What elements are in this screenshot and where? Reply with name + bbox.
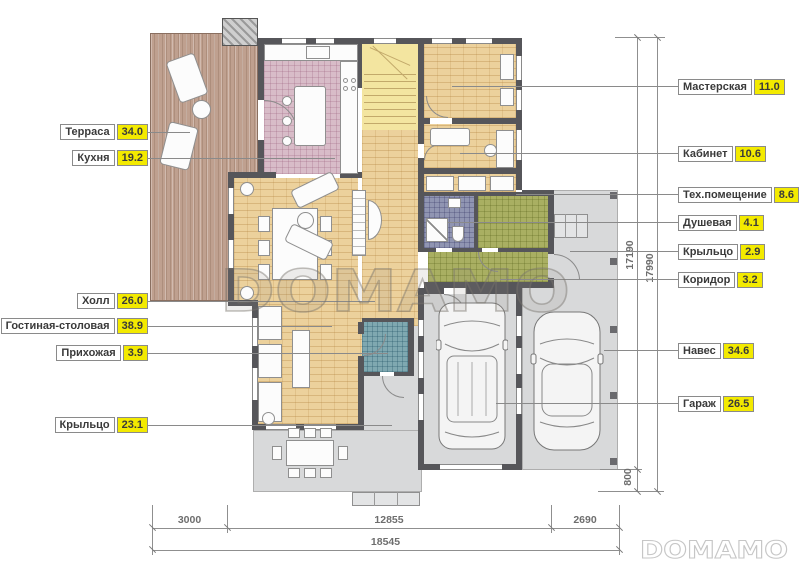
terrace-table [192,100,211,119]
dim-value-3000: 3000 [152,514,227,526]
leader-terrace [148,132,190,133]
room-label-office: Кабинет 10.6 [678,146,766,162]
coffee-table [297,212,314,229]
watermark-corner: DOMAMO [638,534,794,566]
leader-entry [148,353,388,354]
plant-pot [262,412,275,425]
hall-closet [292,330,310,388]
plant-pot [240,182,254,196]
window [228,240,234,268]
room-name: Коридор [678,272,735,288]
room-area-value: 3.9 [123,345,148,361]
sedan-car-topview [530,310,604,452]
window [418,394,424,420]
wall [358,322,364,334]
dim-line-total [152,550,619,551]
window [516,388,522,414]
carport-post [610,458,617,465]
outdoor-chair [304,468,316,478]
leader-shower [448,222,678,223]
outdoor-chair [304,428,316,438]
leader-side-porch [570,251,678,252]
toilet [452,226,464,242]
workshop-bench [500,54,514,80]
stair-tread [364,123,416,124]
window [516,316,522,336]
leader-workshop [452,86,678,87]
wall [362,372,380,376]
stair-tread [364,109,416,110]
side-porch-step-line [576,214,577,238]
room-name: Навес [678,343,721,359]
window [432,38,452,44]
leader-office [460,153,678,154]
kitchen-sink [306,46,330,59]
dim-value-porch: 800 [622,447,636,507]
room-label-living-dining: Гостиная-столовая 38.9 [1,318,148,334]
outdoor-chair [288,428,300,438]
window [374,38,396,44]
garage-door [440,464,502,470]
chimney-block [222,18,258,46]
room-name: Терраса [60,124,114,140]
room-area-value: 8.6 [774,187,799,203]
suv-car-topview [436,300,508,452]
plant-pot [240,286,254,300]
dining-chair [258,264,270,280]
wall [418,196,424,252]
office-chair [484,144,497,157]
room-label-kitchen: Кухня 19.2 [72,150,148,166]
side-porch-step-line [565,214,566,238]
dim-value-18545: 18545 [152,536,619,548]
wall [424,248,436,252]
stair-tread [364,81,416,82]
dining-chair [320,216,332,232]
room-name: Душевая [678,215,737,231]
leader-porch [148,425,392,426]
porch-steps [352,492,420,506]
room-name: Крыльцо [678,244,738,260]
fireplace-shelf [352,190,366,256]
stove-burner [351,78,356,83]
room-label-hall: Холл 26.0 [77,293,148,309]
room-area-value: 26.0 [117,293,148,309]
window [516,90,522,110]
room-label-carport: Навес 34.6 [678,343,754,359]
room-label-utility: Тех.помещение 8.6 [678,187,799,203]
leader-living [148,326,332,327]
porch-step-line [374,492,375,506]
bar-stool [282,96,292,106]
window [516,130,522,160]
stair-tread [364,116,416,117]
office-desk [496,130,514,168]
room-name: Гараж [678,396,721,412]
window [418,352,424,378]
wall [408,318,414,376]
room-name: Тех.помещение [678,187,772,203]
leader-corridor [500,279,678,280]
leader-garage [496,403,678,404]
room-area-value: 19.2 [117,150,148,166]
stair-tread [364,88,416,89]
wall [362,318,414,322]
leader-hall [148,301,375,302]
closet-unit [458,176,486,191]
dim-value-vertical-outer: 17990 [644,238,658,298]
leader-utility [516,194,678,195]
dining-chair [320,264,332,280]
room-area-value: 4.1 [739,215,764,231]
wall [418,464,440,470]
room-name: Мастерская [678,79,752,95]
outdoor-chair [272,446,282,460]
wardrobe [258,344,282,378]
wall [358,356,364,426]
window [418,320,424,336]
dim-value-vertical-inner: 17190 [624,225,638,285]
kitchen-island [294,86,326,146]
wardrobe [258,306,282,340]
room-label-terrace: Терраса 34.0 [60,124,148,140]
room-name: Крыльцо [55,417,115,433]
outdoor-chair [338,446,348,460]
wall [502,464,522,470]
wall [418,174,424,192]
stove-burner [343,86,348,91]
room-label-shower: Душевая 4.1 [678,215,764,231]
outdoor-table [286,440,334,466]
room-area-value: 3.2 [737,272,762,288]
room-name: Прихожая [56,345,120,361]
room-area-value: 2.9 [740,244,765,260]
room-label-side-porch: Крыльцо 2.9 [678,244,765,260]
wall [418,168,522,174]
outdoor-chair [288,468,300,478]
floor-plan-canvas: Терраса 34.0 Кухня 19.2 Холл 26.0 Гостин… [0,0,800,571]
shower-cabin [426,218,448,242]
stove-burner [351,86,356,91]
wall [418,124,424,144]
bar-stool [282,136,292,146]
room-name: Кабинет [678,146,733,162]
carport-post [610,392,617,399]
carport-post [610,258,617,265]
wall [228,172,276,178]
outdoor-chair [320,468,332,478]
room-name: Гостиная-столовая [1,318,115,334]
bath-sink [448,198,461,208]
room-area-value: 11.0 [754,79,785,95]
room-label-garage: Гараж 26.5 [678,396,754,412]
bar-stool [282,116,292,126]
room-area-value: 38.9 [117,318,148,334]
room-name: Холл [77,293,115,309]
closet-unit [490,176,514,191]
room-label-entry: Прихожая 3.9 [56,345,148,361]
room-area-value: 23.1 [117,417,148,433]
room-area-value: 34.6 [723,343,754,359]
office-sofa [430,128,470,146]
room-name: Кухня [72,150,114,166]
window [516,348,522,374]
stove-burner [343,78,348,83]
room-area-value: 10.6 [735,146,766,162]
wall [466,288,522,294]
dim-value-2690: 2690 [551,514,619,526]
dim-value-12855: 12855 [227,514,551,526]
workshop-sink [500,88,514,106]
room-label-workshop: Мастерская 11.0 [678,79,785,95]
watermark-text: DOMAMO [640,536,788,564]
room-area-value: 34.0 [117,124,148,140]
carport-post [610,326,617,333]
stair-tread [364,95,416,96]
leader-kitchen [148,158,335,159]
dim-line-800 [637,470,638,492]
outdoor-chair [320,428,332,438]
dining-chair [258,240,270,256]
stair-tread [364,102,416,103]
closet-unit [426,176,454,191]
window [228,188,234,214]
dining-chair [258,216,270,232]
room-label-porch: Крыльцо 23.1 [55,417,148,433]
porch-area [253,430,422,492]
wall [498,248,554,252]
dim-line-segments [152,528,619,529]
window [466,38,492,44]
side-porch-steps [554,214,588,238]
leader-carport [604,350,678,351]
room-area-value: 26.5 [723,396,754,412]
wall [452,118,522,124]
wall [418,44,424,124]
stair-tread [364,74,416,75]
window [516,56,522,80]
room-label-corridor: Коридор 3.2 [678,272,763,288]
porch-step-line [397,492,398,506]
